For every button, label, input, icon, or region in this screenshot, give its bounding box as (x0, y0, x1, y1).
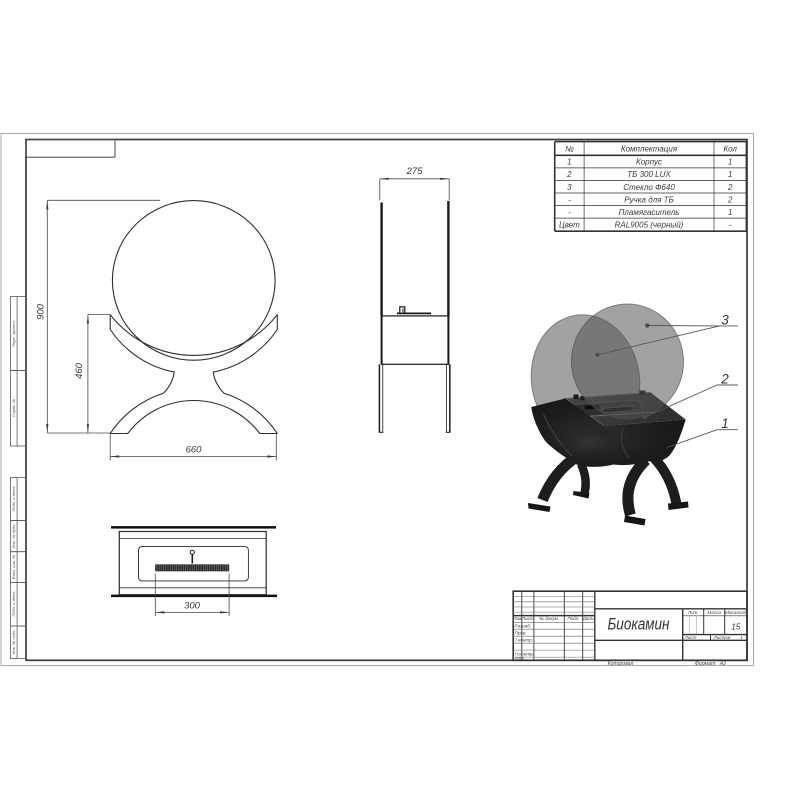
svg-text:Пламягаситель: Пламягаситель (619, 208, 680, 217)
svg-text:2: 2 (566, 170, 572, 179)
svg-text:А2: А2 (719, 661, 726, 667)
svg-text:Масса: Масса (707, 610, 721, 615)
svg-text:1: 1 (567, 158, 571, 167)
svg-text:Подп. и дата: Подп. и дата (11, 486, 16, 512)
svg-text:300: 300 (184, 601, 201, 612)
svg-text:-: - (568, 208, 571, 217)
svg-text:3: 3 (567, 183, 572, 192)
svg-text:275: 275 (406, 166, 424, 177)
svg-text:Лит.: Лит. (687, 610, 699, 615)
svg-text:1: 1 (721, 416, 729, 431)
svg-text:Комплектация: Комплектация (621, 144, 678, 153)
svg-text:Ручка для ТБ: Ручка для ТБ (624, 195, 673, 204)
svg-text:Утв.: Утв. (515, 656, 525, 661)
svg-text:Инв. № дубл.: Инв. № дубл. (11, 524, 16, 549)
svg-text:Взам. инв. №: Взам. инв. № (11, 554, 16, 579)
svg-text:№ докум.: № докум. (539, 616, 559, 621)
svg-text:660: 660 (186, 445, 203, 456)
svg-text:1: 1 (740, 635, 743, 640)
svg-text:2: 2 (727, 195, 733, 204)
svg-text:2: 2 (727, 183, 733, 192)
svg-text:Стекло Ф640: Стекло Ф640 (623, 183, 675, 192)
svg-text:460: 460 (74, 362, 85, 379)
svg-text:Цвет: Цвет (559, 220, 580, 229)
svg-text:Справ. №: Справ. № (11, 398, 16, 417)
svg-text:-: - (729, 220, 732, 229)
svg-text:Лист: Лист (684, 635, 697, 640)
svg-text:1: 1 (728, 170, 732, 179)
svg-text:Дата: Дата (582, 616, 596, 621)
svg-text:Формат: Формат (695, 661, 716, 667)
svg-text:Листов: Листов (713, 635, 731, 640)
svg-text:15: 15 (731, 623, 740, 632)
svg-text:ТБ 300 LUX: ТБ 300 LUX (627, 170, 671, 179)
svg-text:Т.контр.: Т.контр. (515, 638, 534, 643)
svg-text:№: № (565, 144, 574, 153)
svg-text:Перв. примен.: Перв. примен. (11, 320, 16, 347)
svg-text:Кол: Кол (723, 144, 737, 153)
svg-text:2: 2 (720, 371, 729, 386)
svg-text:1: 1 (728, 158, 732, 167)
svg-text:Инв. № подл.: Инв. № подл. (11, 630, 16, 655)
svg-text:Биокамин: Биокамин (608, 616, 670, 634)
svg-text:Разраб.: Разраб. (515, 624, 532, 629)
svg-text:RAL9005 (черный): RAL9005 (черный) (615, 220, 684, 229)
svg-text:Пров.: Пров. (515, 631, 527, 636)
svg-text:900: 900 (36, 303, 47, 320)
svg-text:1: 1 (728, 208, 732, 217)
svg-text:-: - (568, 195, 571, 204)
svg-text:Масштаб: Масштаб (725, 610, 747, 615)
svg-text:Копировал: Копировал (608, 661, 634, 667)
svg-text:3: 3 (721, 313, 729, 328)
svg-text:Подп.: Подп. (567, 616, 579, 621)
svg-text:Корпус: Корпус (636, 158, 662, 167)
svg-text:Лист: Лист (521, 616, 534, 621)
svg-text:Подп. и дата: Подп. и дата (11, 591, 16, 617)
